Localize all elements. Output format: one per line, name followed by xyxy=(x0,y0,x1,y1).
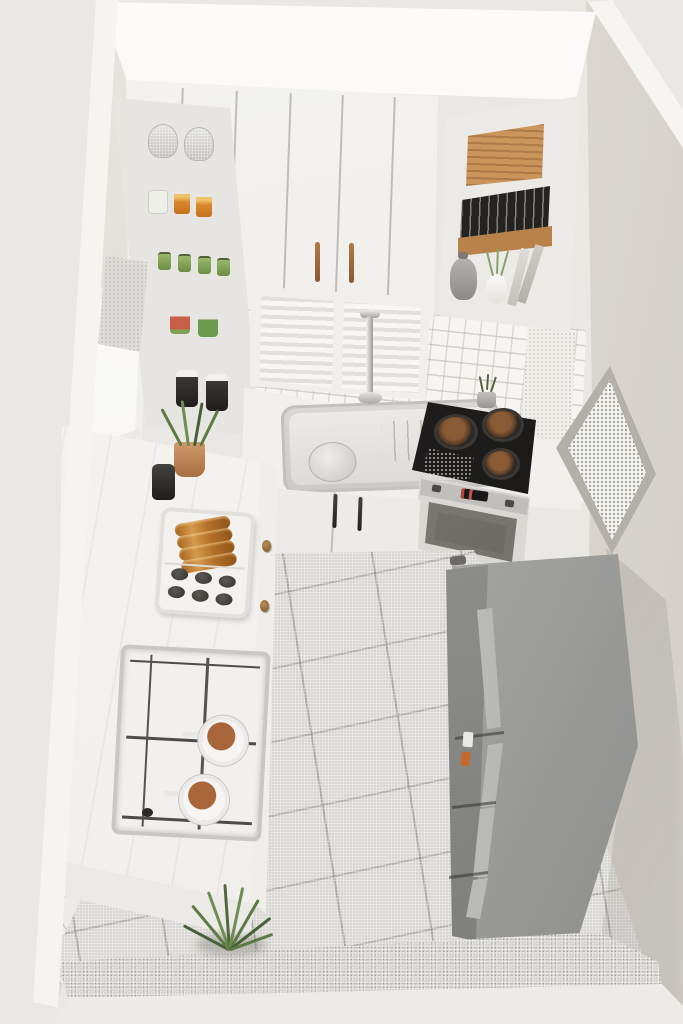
faucet-base xyxy=(358,392,382,404)
clear-bag xyxy=(148,190,168,214)
green-jar xyxy=(158,252,171,270)
gas-hob xyxy=(111,644,271,842)
faucet xyxy=(366,316,373,404)
canned-food xyxy=(198,315,218,337)
kettle xyxy=(450,258,477,300)
black-canister xyxy=(152,464,175,500)
small-plant-pot xyxy=(477,392,496,408)
stone xyxy=(215,593,233,606)
green-jar xyxy=(178,254,191,272)
cooking-pot xyxy=(178,773,231,826)
black-jar xyxy=(206,374,228,411)
terracotta-pot xyxy=(174,442,205,477)
floor-plant xyxy=(186,856,272,968)
stone xyxy=(195,571,213,584)
pan xyxy=(434,414,478,450)
pot-handle xyxy=(163,791,179,797)
hob-knob xyxy=(142,808,153,817)
green-jar xyxy=(198,256,211,274)
cabinet-wood-handle xyxy=(349,243,354,283)
stone xyxy=(191,589,209,602)
wooden-knob xyxy=(260,600,269,612)
fridge-note xyxy=(462,732,473,748)
cooking-pot xyxy=(197,714,250,767)
pan xyxy=(482,408,524,442)
hob-grate xyxy=(141,655,152,826)
fridge-magnet xyxy=(460,752,470,767)
white-vase xyxy=(486,274,507,304)
oven-button xyxy=(505,499,515,507)
fridge-hinge xyxy=(450,555,467,566)
pot-handle xyxy=(182,732,198,738)
stone xyxy=(168,585,186,598)
black-jar xyxy=(176,370,198,407)
serving-tray xyxy=(154,507,255,619)
wooden-knob xyxy=(262,540,271,552)
kitchen-cutaway-render xyxy=(0,0,683,1024)
orange-jar xyxy=(174,191,190,214)
pan xyxy=(482,448,520,480)
cabinet-wood-handle xyxy=(315,242,320,282)
orange-jar xyxy=(196,194,212,217)
mesh-canister xyxy=(148,124,178,158)
mesh-canister xyxy=(184,127,214,161)
stone xyxy=(171,568,189,581)
green-jar xyxy=(217,258,230,276)
oven-button xyxy=(432,484,442,492)
stone xyxy=(218,575,236,588)
canned-food xyxy=(170,312,190,334)
